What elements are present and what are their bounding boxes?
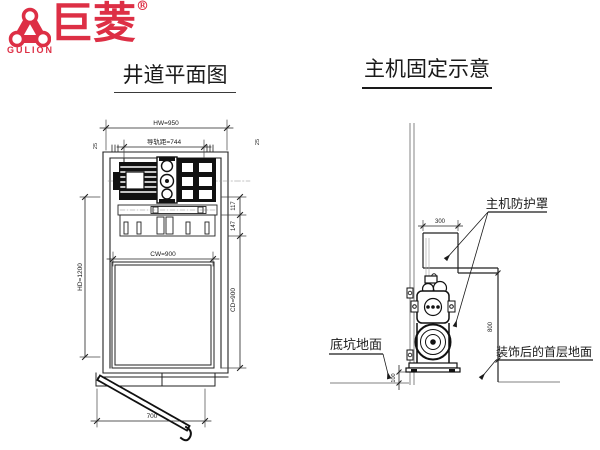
dim-text-machine-depth: 117 — [231, 201, 237, 211]
label-text-machine-cover: 主机防护罩 — [486, 196, 549, 211]
label-text-pit-floor: 底坑地面 — [330, 337, 382, 352]
car-outline — [112, 262, 214, 368]
label-text-first-floor: 装饰后的首层地面 — [496, 344, 592, 359]
dim-text-base-height: 100 — [391, 373, 397, 382]
machine-fixing-elevation: 300 800 100 — [329, 123, 593, 390]
registered-mark: ® — [136, 0, 149, 14]
dim-right-stack: 117 147 CD=900 — [222, 195, 246, 371]
dim-text-hoistway-depth: HD=1200 — [77, 263, 84, 291]
machine-plan-drawing — [108, 157, 250, 203]
dim-cover-width: 300 — [418, 219, 463, 231]
dim-text-cover-height: 800 — [488, 321, 494, 332]
shaft-wall — [410, 123, 414, 385]
dim-text-rail-gauge: 导轨距=744 — [147, 137, 182, 146]
dim-text-bedplate-depth: 147 — [231, 220, 237, 231]
dim-text-hoistway-width: HW=950 — [153, 120, 179, 127]
dim-text-car-width: CW=900 — [150, 251, 176, 258]
plan-view-title: 井道平面图 — [114, 59, 236, 93]
dim-text-car-depth: CD=900 — [230, 288, 237, 312]
gulion-logo-icon — [5, 3, 51, 49]
shaft-plan-view: HW=950 导轨距=744 25 25 — [77, 120, 261, 440]
label-pit-floor: 底坑地面 — [329, 337, 389, 378]
dim-text-rail-offset-left: 25 — [93, 143, 99, 149]
dim-text-cover-width: 300 — [435, 219, 446, 225]
elevation-view-title: 主机固定示意 — [362, 53, 492, 89]
dim-text-door-width: 700 — [147, 413, 158, 420]
brand-name-en: GULION — [7, 45, 54, 55]
rope-lines — [426, 238, 429, 280]
drawing-sheet: 巨菱® GULION 井道平面图 主机固定示意 — [0, 0, 600, 450]
machine-bedplate — [118, 205, 217, 236]
brand-name-cn: 巨菱® — [50, 0, 149, 48]
brand-name-cn-text: 巨菱 — [50, 0, 136, 49]
dim-text-rail-offset-right: 25 — [255, 139, 261, 145]
rail-bracket-marks — [112, 145, 213, 152]
dim-hoistway-depth: HD=1200 — [77, 195, 100, 360]
dim-car-width: CW=900 — [107, 251, 219, 266]
label-machine-cover: 主机防护罩 — [446, 196, 548, 326]
cad-drawing: HW=950 导轨距=744 25 25 — [0, 0, 600, 450]
